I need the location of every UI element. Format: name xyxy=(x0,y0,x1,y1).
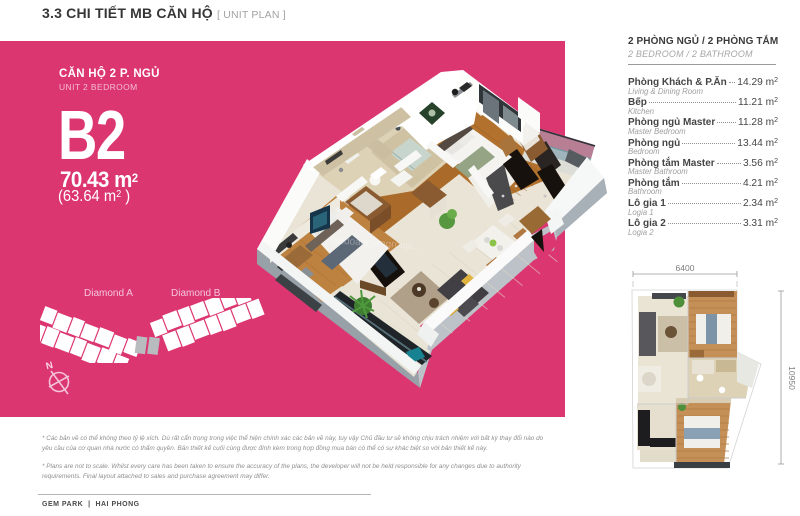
svg-text:6400: 6400 xyxy=(676,263,695,273)
svg-text:N: N xyxy=(45,360,54,372)
svg-text:10950: 10950 xyxy=(787,366,797,390)
